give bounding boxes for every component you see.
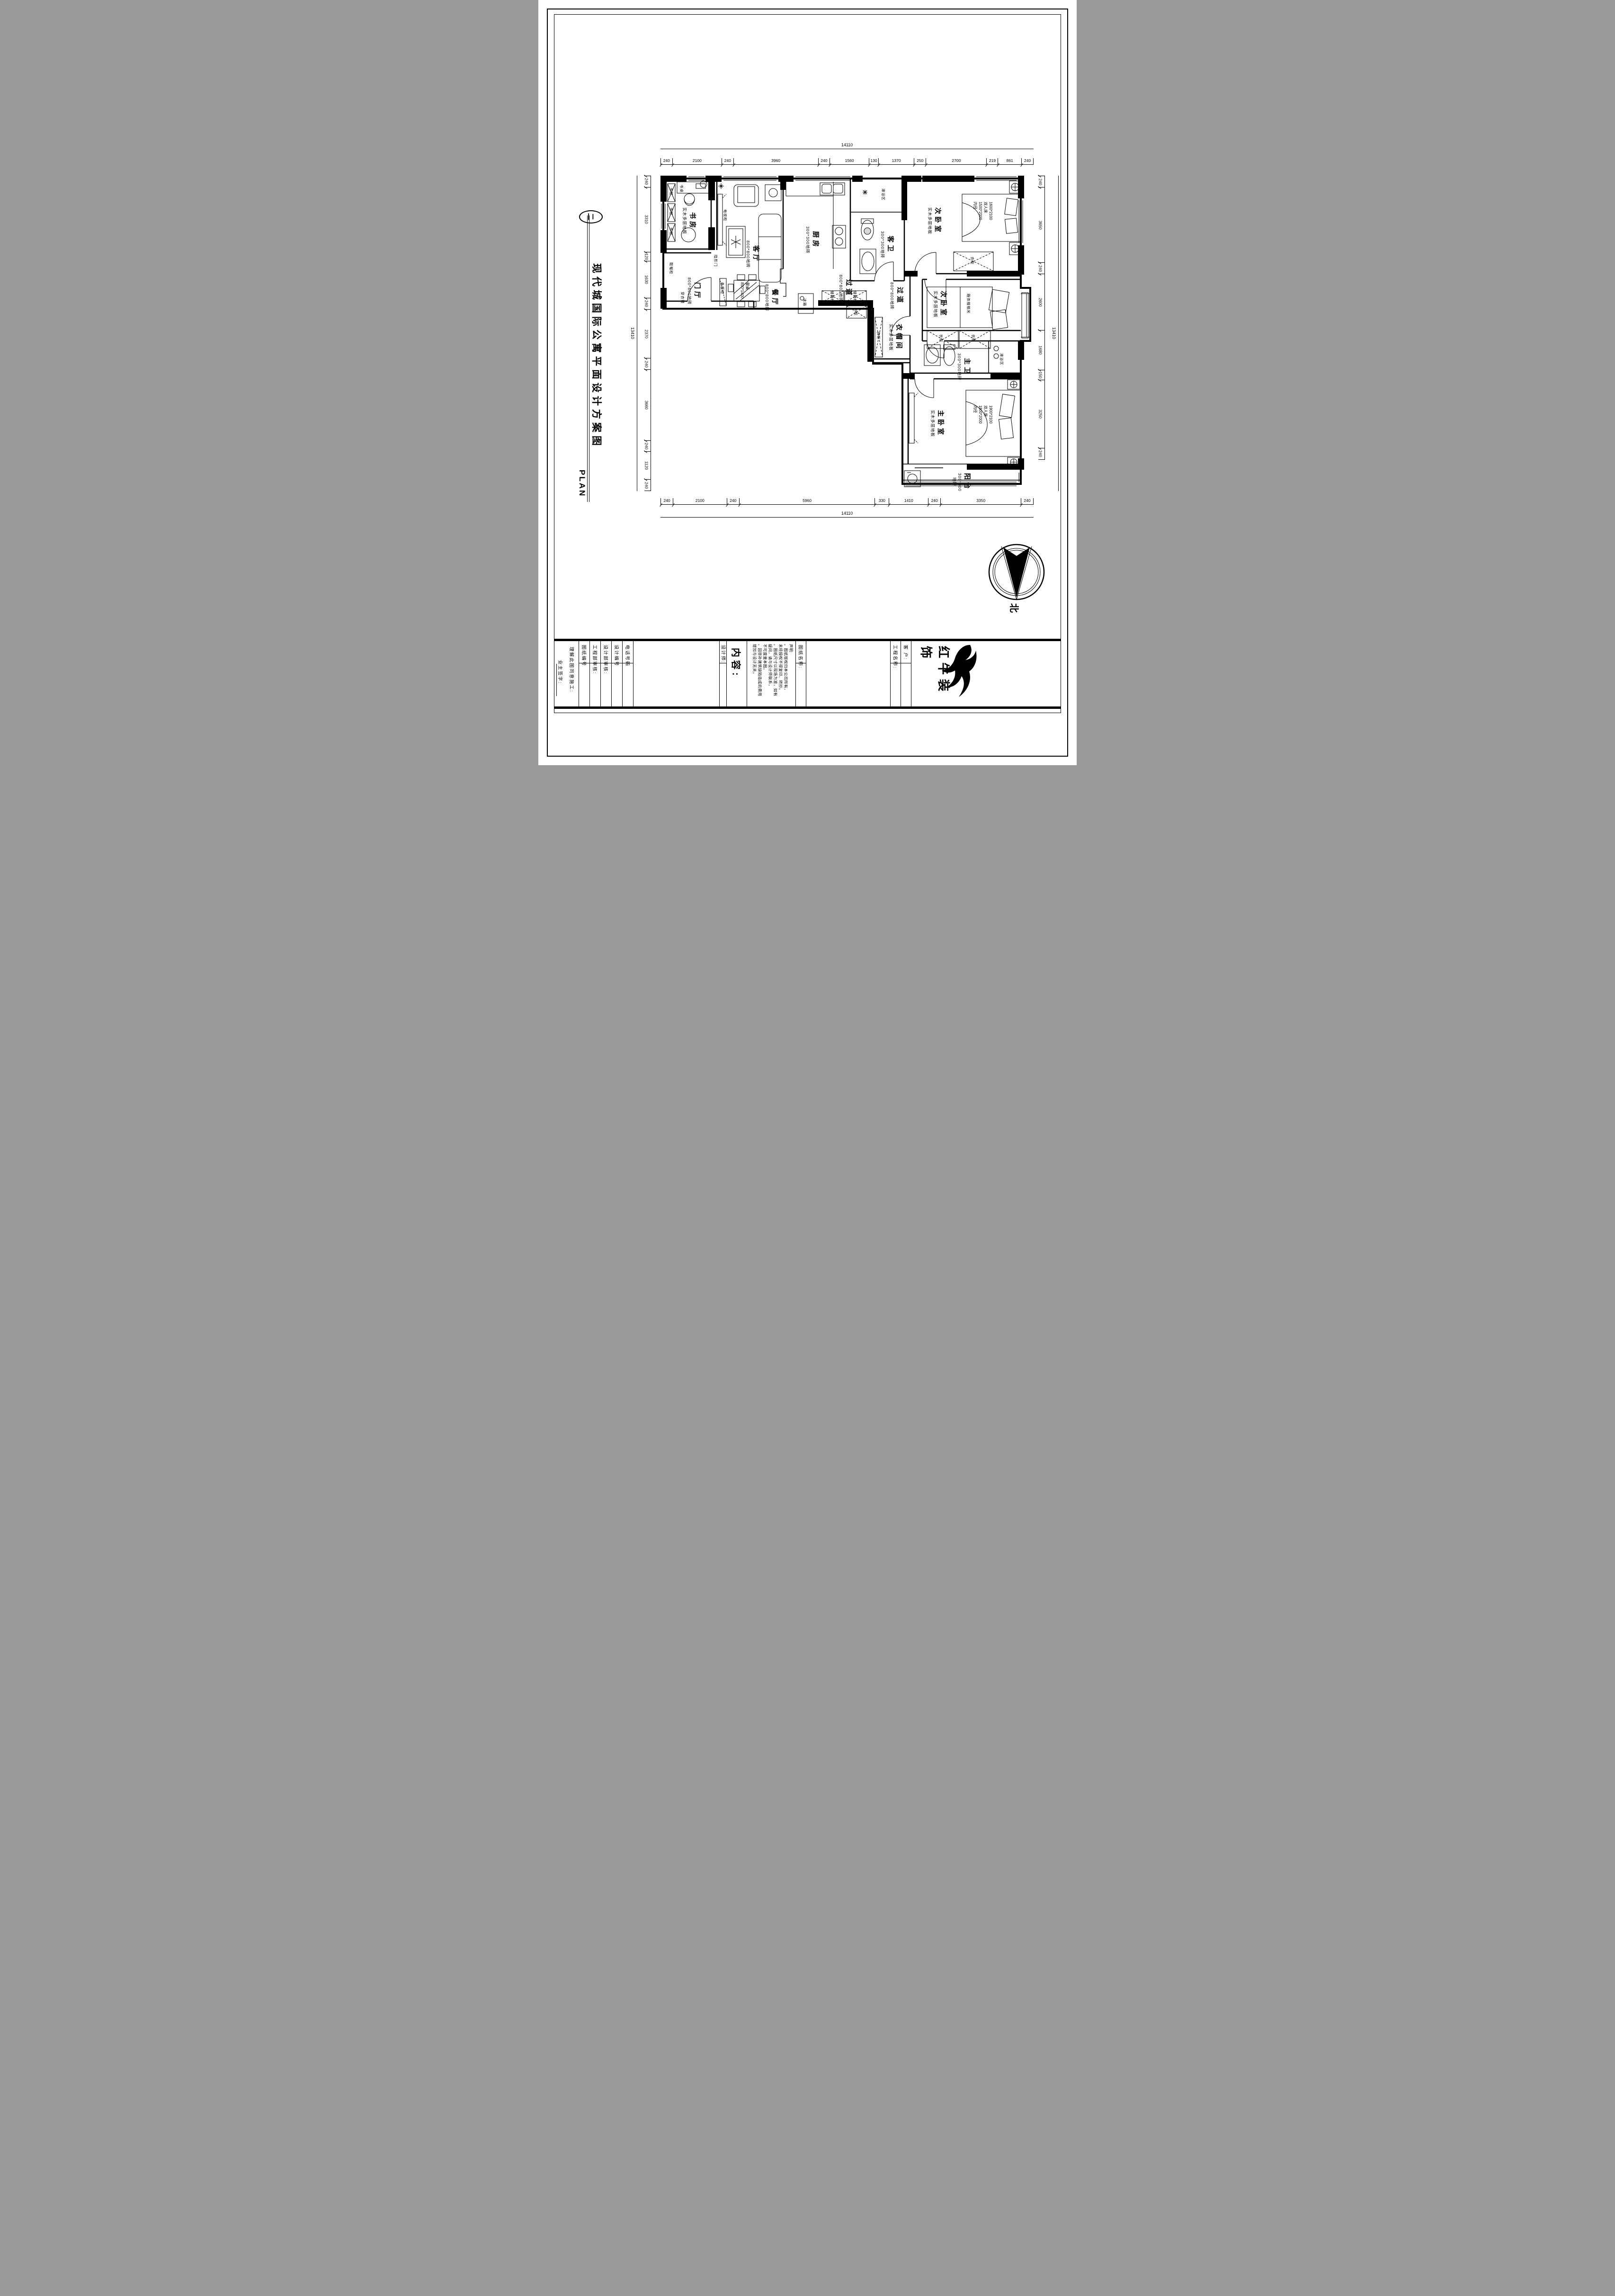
figure-number-bubble: 二 (579, 210, 603, 223)
titleblock-designer: 设计师: (720, 641, 727, 706)
label-tv-cabinet: 电视柜 (723, 209, 728, 222)
titleblock-eng-review: 工程部审核: (590, 641, 601, 706)
dim-row-top: 240 2100 240 3960 240 1560 130 1370 250 … (660, 158, 1034, 165)
room-label-master-bath: 主卫300*300地砖 (956, 353, 972, 381)
room-label-closet: 衣帽间实木多层地板 (888, 324, 904, 351)
title-rule (587, 215, 589, 502)
label-wardrobe-bedroom-top: 衣柜 (970, 257, 975, 265)
room-label-living: 客厅 800*800地砖 (745, 241, 761, 268)
label-shower-area-guest: 淋浴区 (881, 188, 886, 201)
titleblock-content: 内容: (727, 641, 747, 706)
owner-signature-line[interactable] (556, 664, 557, 696)
north-label: 北 (1008, 603, 1022, 613)
room-label-bedroom-mid: 次卧室实木多层地板 (933, 291, 948, 318)
room-label-study: 书房 实木多层地板 (682, 207, 697, 234)
label-hidden-door: 隐形门 (713, 255, 718, 267)
title-block: 业主签字: 理解此图同意施工: 图纸编号 工程部审核: 设计部审核: 设计编号 … (554, 639, 1061, 709)
room-label-corridor-2: 过道800*800地砖 (889, 282, 905, 310)
label-bookcase-3: 书柜 (669, 227, 674, 235)
drawing-sheet: 二 现代城国际公寓平面设计方案图 PLAN (538, 0, 1077, 765)
titleblock-owner-cell: 业主签字: 理解此图同意施工: (554, 641, 579, 706)
label-bed-top: 1600*2100 双人床 1500*2000 内径 (973, 202, 993, 220)
label-wardrobe-mid-1: 衣柜 (938, 334, 944, 342)
titleblock-project-name: 工程名称: (891, 641, 901, 706)
titleblock-drawing-name-value[interactable] (806, 641, 891, 706)
label-bed-master: 1900*2100 双人床 1800*2000 内径 (973, 405, 993, 424)
floor-plan-drawing (659, 174, 1038, 492)
north-arrow: 北 (987, 543, 1046, 614)
brand-logo (936, 642, 979, 702)
titleblock-drawing-no: 图纸编号 (579, 641, 590, 706)
dim-col-right: 240 3650 240 2600 1680 150 3250 240 (1038, 176, 1045, 460)
label-storage-2: 储物柜 (852, 291, 857, 303)
label-tatami: 箱体榻榻米 (966, 294, 971, 314)
titleblock-drawing-name: 图纸名称: (796, 641, 806, 706)
plan-label: PLAN (577, 470, 587, 497)
agree-construction-label: 理解此图同意施工: (569, 647, 575, 693)
label-bookcase-2: 书柜 (669, 207, 674, 215)
label-wardrobe-mid-2: 衣柜 (971, 334, 976, 342)
outer-wall (663, 179, 1030, 484)
dim-total-top: 14110 (660, 142, 1034, 149)
titleblock-blank-cell (634, 641, 720, 706)
label-bookcase-1: 书柜 (669, 188, 674, 196)
bull-logo-icon (936, 642, 979, 702)
label-wardrobe-corridor: 衣柜 (853, 308, 858, 316)
titleblock-design-review: 设计部审核: (601, 641, 612, 706)
furniture (668, 181, 1028, 487)
dim-row-bottom: 240 2100 240 5960 330 1410 240 3350 240 (660, 498, 1034, 505)
label-storage-1: 储物柜 (830, 291, 835, 303)
room-label-guest-bath: 客卫300*300地砖 (880, 231, 895, 259)
north-arrow-pointer (1003, 547, 1030, 598)
dim-total-right: 13410 (1052, 176, 1059, 491)
label-dining-table: 餐桌 800*1400 (740, 282, 750, 298)
room-label-corridor-1: 过道800*800地砖 (838, 275, 854, 302)
room-label-master-bedroom: 主卧室实木多层地板 (930, 410, 946, 437)
sheet-title: 现代城国际公寓平面设计方案图 (590, 263, 604, 449)
label-shower-area-master: 淋浴区 (999, 353, 1004, 366)
label-serving-cabinet: 备餐柜 (720, 282, 725, 295)
dim-total-left: 13410 (630, 176, 637, 491)
room-label-balcony: 阳台300*300地砖 (952, 472, 972, 492)
label-desk: 书桌 (679, 185, 684, 193)
room-label-entry: 门厅800*800地砖 (687, 277, 702, 305)
dim-col-left: 240 3310 120 1630 240 2370 240 3660 240 … (644, 176, 651, 491)
titleblock-declaration: 声明: 。图纸版权归本公司所有， 未经授权不得复印、转抄。 。图纸尺寸以现场为准… (747, 641, 796, 706)
label-shoe-cabinet: 鞋帽柜 (669, 262, 674, 275)
room-label-bedroom-top: 次卧室实木多层地板 (927, 207, 943, 234)
room-label-dining: 餐厅800*800地砖 (764, 284, 780, 312)
titleblock-phone: 电话号码 (623, 641, 634, 706)
titleblock-design-no: 设计编号 (612, 641, 623, 706)
interior-walls (663, 179, 1021, 480)
room-label-kitchen: 厨房300*300地砖 (805, 226, 821, 254)
label-fridge: 冰箱 (802, 298, 807, 306)
floor-plan: 书房 实木多层地板 客厅 800*800地砖 餐厅800*800地砖 门厅800… (659, 174, 1038, 492)
label-wardrobe-closet: 衣柜 (876, 331, 881, 339)
owner-signature-label: 业主签字: (557, 660, 564, 684)
wall-piers (660, 176, 1024, 470)
label-mirror: 穿衣镜 (680, 292, 685, 304)
titleblock-client: 客 户: (901, 641, 911, 706)
titleblock-logo-cell: 红牛装饰 (911, 641, 1061, 706)
dim-total-bottom: 14110 (660, 510, 1034, 518)
